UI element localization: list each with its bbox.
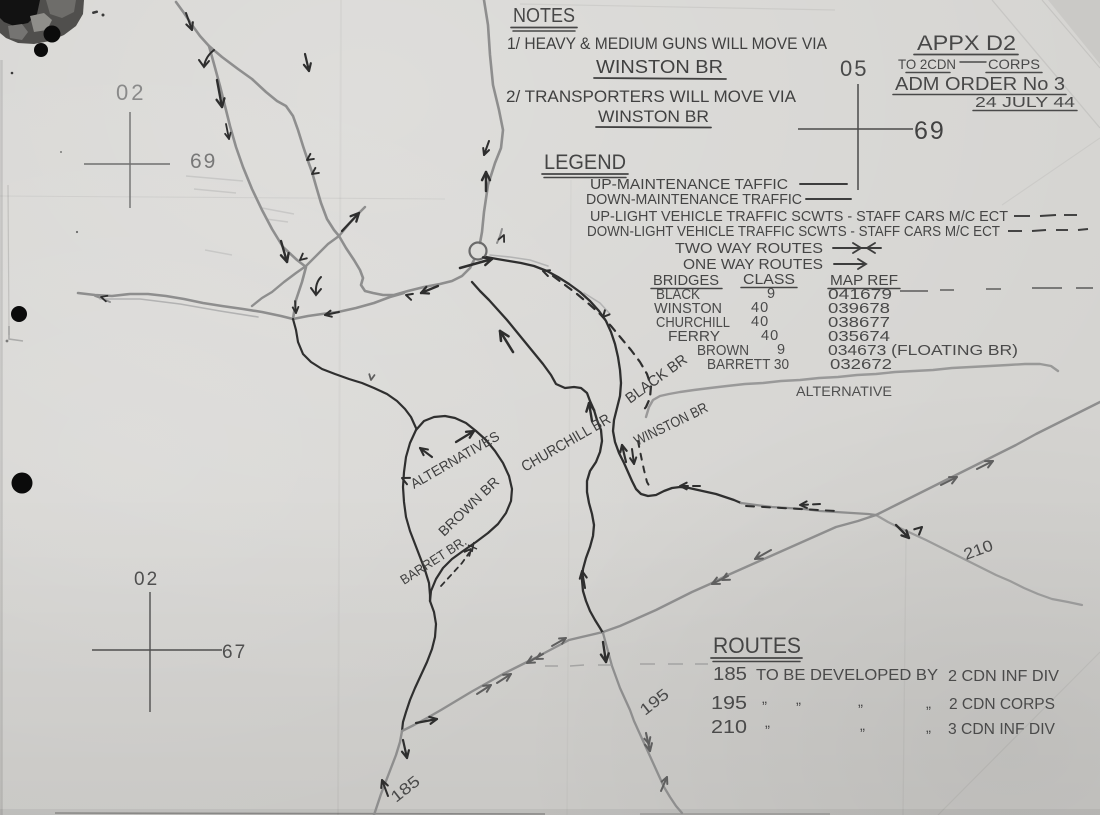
svg-text:05: 05	[840, 56, 868, 81]
svg-text:TO BE DEVELOPED BY: TO BE DEVELOPED BY	[756, 667, 938, 684]
svg-text:195: 195	[711, 693, 747, 713]
svg-text:NOTES: NOTES	[513, 5, 575, 27]
svg-text:„: „	[858, 693, 863, 710]
svg-text:ADM ORDER No 3: ADM ORDER No 3	[895, 74, 1065, 94]
svg-text:„: „	[860, 717, 865, 734]
svg-text:„: „	[762, 690, 767, 707]
svg-text:WINSTON BR: WINSTON BR	[596, 57, 723, 77]
svg-text:2/ TRANSPORTERS WILL MOVE VIA: 2/ TRANSPORTERS WILL MOVE VIA	[506, 87, 797, 106]
svg-text:„: „	[796, 691, 801, 708]
svg-text:69: 69	[190, 150, 217, 173]
svg-text:69: 69	[914, 117, 946, 145]
svg-text:„: „	[926, 719, 931, 736]
svg-text:UP-LIGHT VEHICLE TRAFFIC SCWT: UP-LIGHT VEHICLE TRAFFIC SCWTS - STAFF C…	[590, 208, 1008, 225]
svg-text:DOWN-MAINTENANCE TRAFFIC: DOWN-MAINTENANCE TRAFFIC	[586, 191, 802, 208]
svg-text:TWO WAY ROUTES: TWO WAY ROUTES	[675, 240, 823, 257]
svg-text:BARRETT 30: BARRETT 30	[707, 357, 789, 373]
svg-text:210: 210	[711, 717, 747, 737]
svg-text:DOWN-LIGHT VEHICLE TRAFFIC SCW: DOWN-LIGHT VEHICLE TRAFFIC SCWTS - STAFF…	[587, 224, 1000, 240]
svg-text:3 CDN INF DIV: 3 CDN INF DIV	[948, 721, 1056, 738]
svg-text:2 CDN INF DIV: 2 CDN INF DIV	[948, 668, 1060, 685]
svg-text:CORPS: CORPS	[988, 56, 1040, 72]
svg-text:02: 02	[134, 569, 159, 590]
svg-text:„: „	[926, 695, 931, 712]
svg-text:02: 02	[116, 80, 146, 105]
svg-text:24 JULY 44: 24 JULY 44	[975, 94, 1075, 111]
svg-text:ROUTES: ROUTES	[713, 633, 801, 658]
svg-text:WINSTON BR: WINSTON BR	[598, 107, 709, 126]
svg-text:032672: 032672	[830, 357, 892, 373]
svg-text:67: 67	[222, 642, 247, 663]
svg-text:ALTERNATIVE: ALTERNATIVE	[796, 383, 892, 399]
svg-text:2 CDN CORPS: 2 CDN CORPS	[949, 696, 1055, 713]
svg-text:LEGEND: LEGEND	[544, 151, 626, 174]
svg-text:1/ HEAVY & MEDIUM GUNS WILL MO: 1/ HEAVY & MEDIUM GUNS WILL MOVE VIA	[507, 34, 828, 53]
svg-text:TO 2CDN: TO 2CDN	[898, 56, 956, 72]
svg-text:„: „	[765, 714, 770, 731]
svg-text:9: 9	[777, 342, 786, 358]
svg-text:185: 185	[713, 664, 747, 684]
svg-text:APPX D2: APPX D2	[917, 32, 1016, 55]
